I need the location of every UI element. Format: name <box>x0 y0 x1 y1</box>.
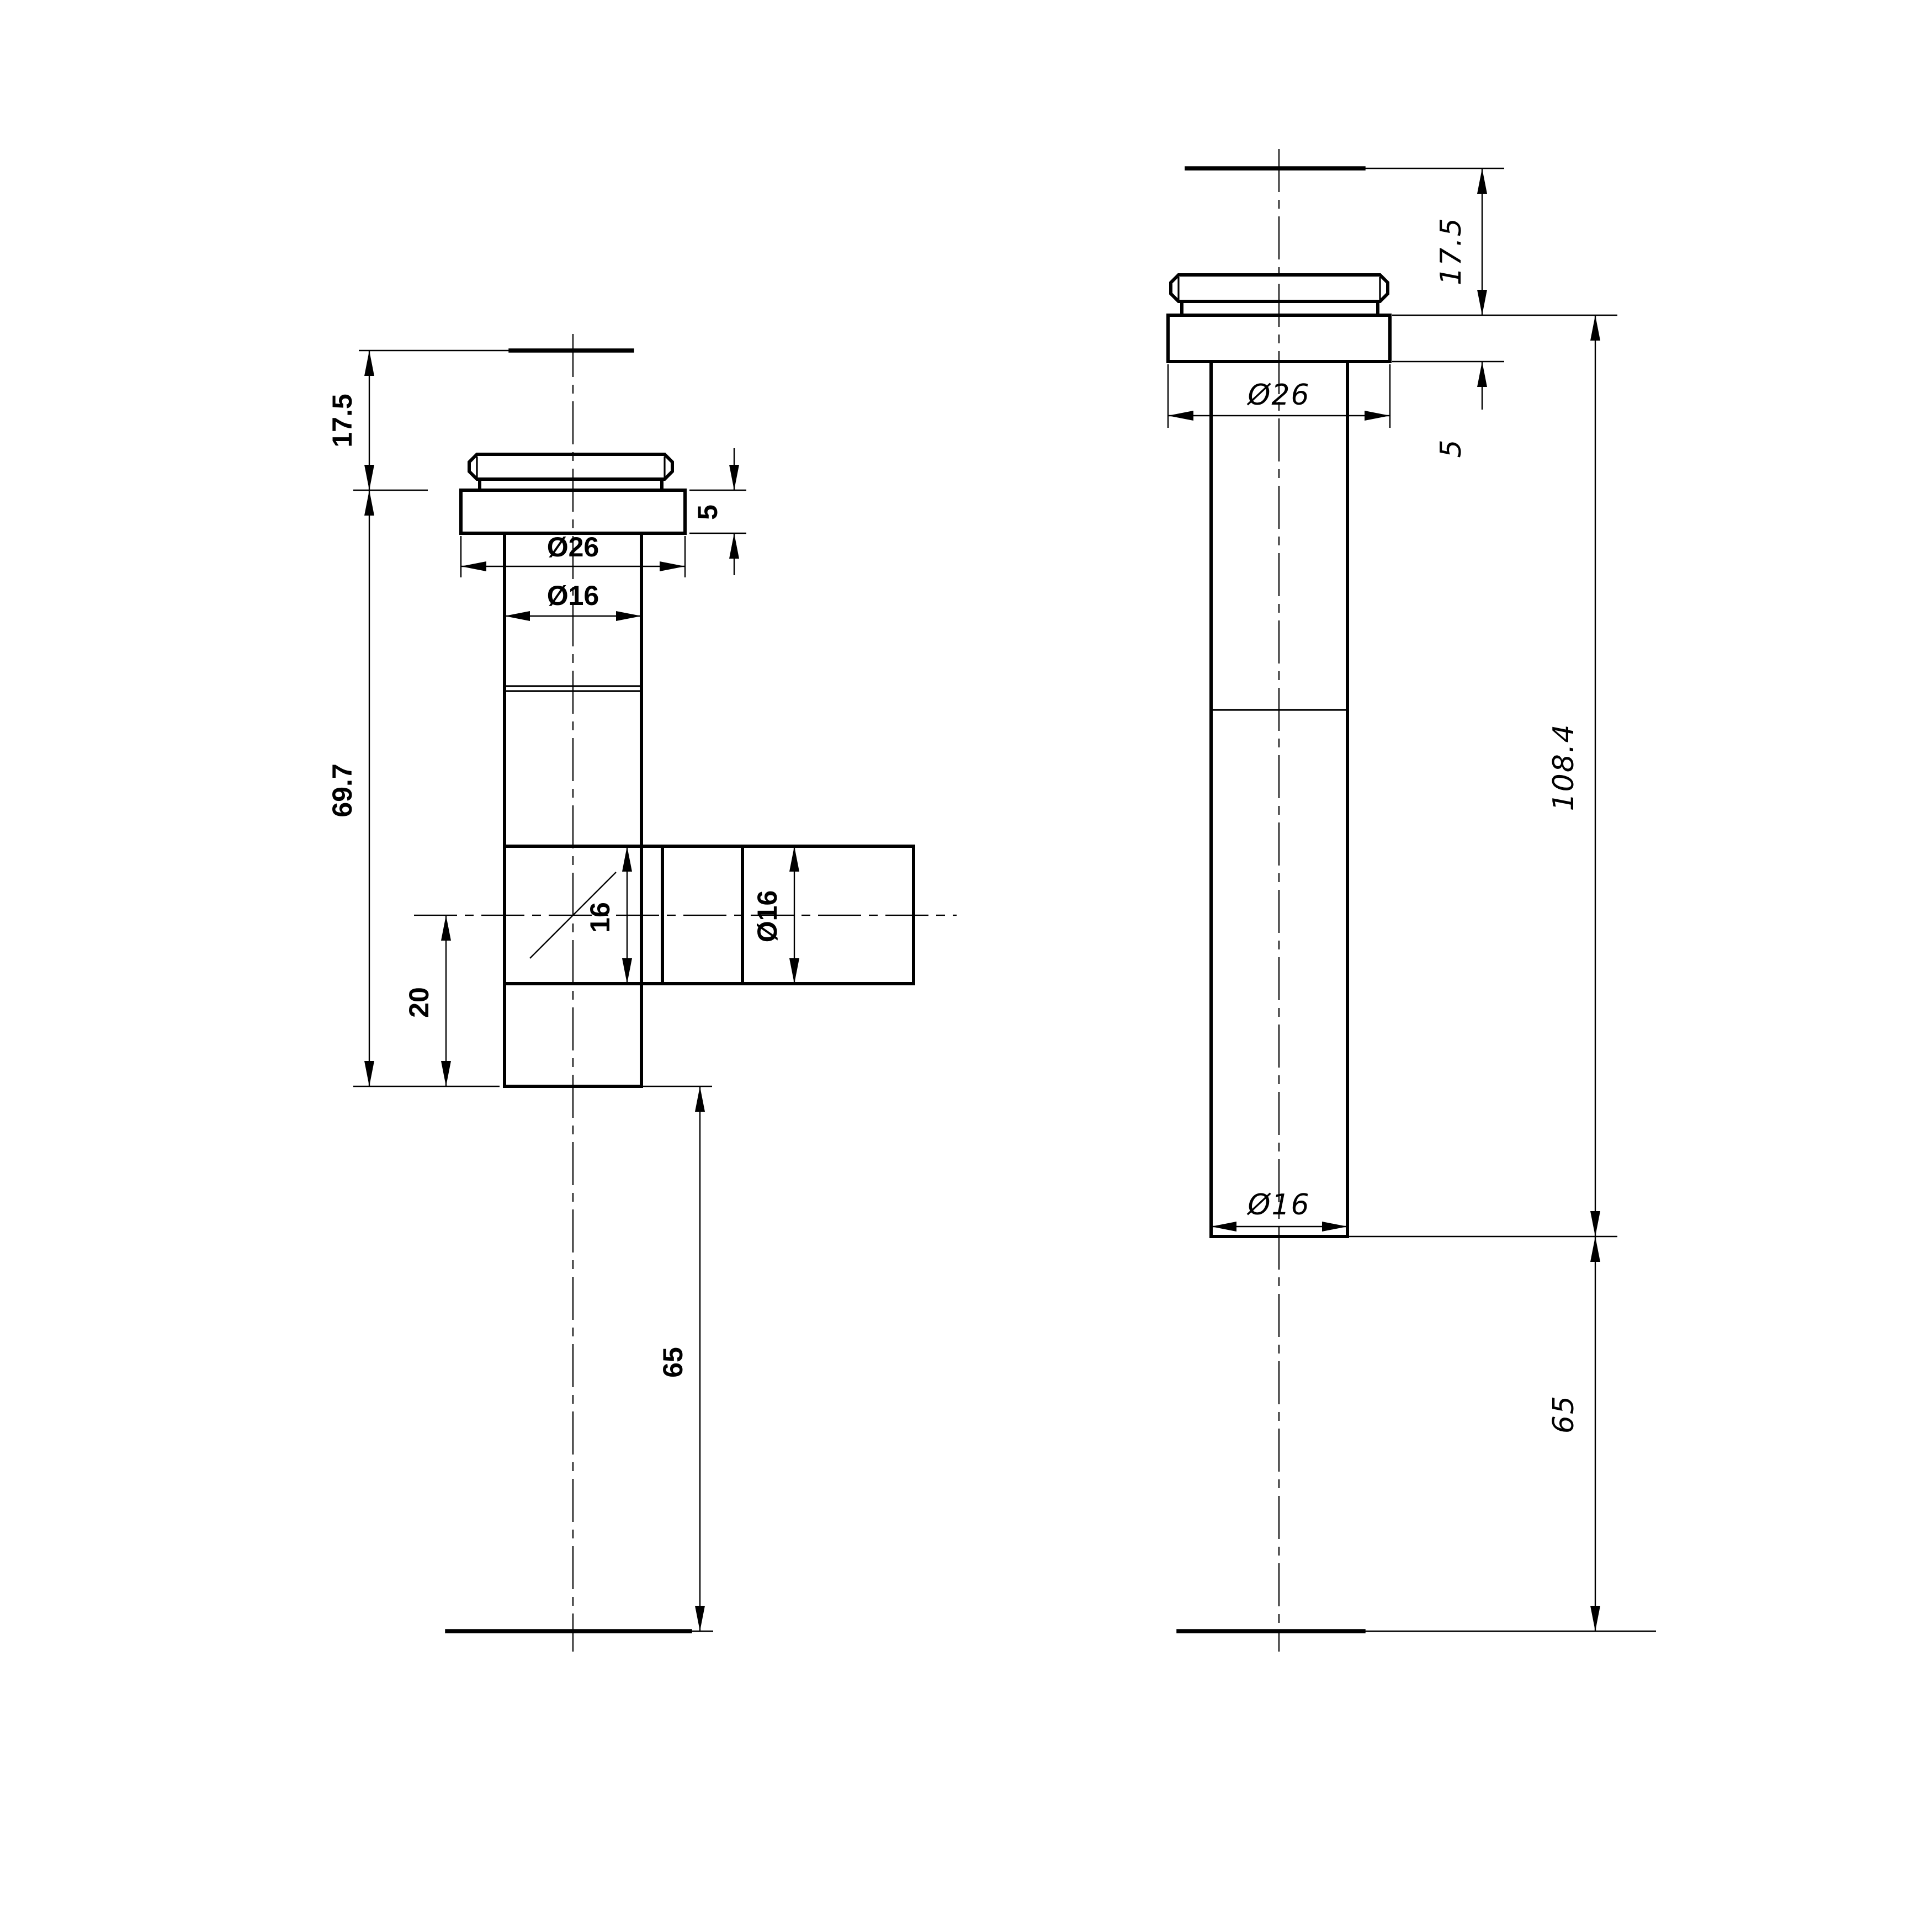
side-dim-label-65: 65 <box>1547 1395 1580 1434</box>
side-dim-label-108-4: 108.4 <box>1547 724 1580 811</box>
front-dim-label-20: 20 <box>404 987 434 1018</box>
front-dim-5: 5 <box>692 448 739 575</box>
front-dim-label-17-5: 17.5 <box>327 394 358 447</box>
front-dim-65: 65 <box>657 1086 705 1631</box>
side-dim-d16: Ø16 <box>1211 1188 1347 1232</box>
front-dim-label-16-bore: 16 <box>585 902 615 933</box>
front-dim-17-5: 17.5 <box>327 351 374 490</box>
side-view: 17.5 5 Ø26 Ø16 108.4 <box>1168 149 1656 1652</box>
front-dim-label-65: 65 <box>657 1347 688 1378</box>
front-dim-label-d16-branch: Ø16 <box>752 890 783 943</box>
drawing-page: 17.5 69.7 20 65 5 <box>0 0 1932 1932</box>
front-dim-label-d26: Ø26 <box>547 532 599 562</box>
side-dim-label-d26: Ø26 <box>1246 379 1310 412</box>
front-dim-20: 20 <box>404 915 451 1086</box>
front-dim-label-5: 5 <box>692 505 723 520</box>
side-dim-d26: Ø26 <box>1168 379 1390 421</box>
side-dim-17-5: 17.5 <box>1435 168 1487 315</box>
side-dim-5: 5 <box>1435 362 1487 458</box>
side-neck <box>1182 301 1378 315</box>
side-dim-label-5: 5 <box>1435 438 1468 458</box>
front-dim-label-d16-pipe: Ø16 <box>547 580 599 611</box>
side-dim-108-4: 108.4 <box>1547 315 1600 1236</box>
side-dim-label-17-5: 17.5 <box>1435 217 1468 285</box>
side-dim-label-d16: Ø16 <box>1246 1188 1310 1222</box>
technical-drawing: 17.5 69.7 20 65 5 <box>0 0 1932 1932</box>
front-dim-label-69-7: 69.7 <box>327 763 358 817</box>
front-view: 17.5 69.7 20 65 5 <box>327 334 957 1652</box>
front-dim-69-7: 69.7 <box>327 490 374 1086</box>
side-dim-65: 65 <box>1547 1236 1600 1631</box>
front-cap <box>469 454 672 479</box>
